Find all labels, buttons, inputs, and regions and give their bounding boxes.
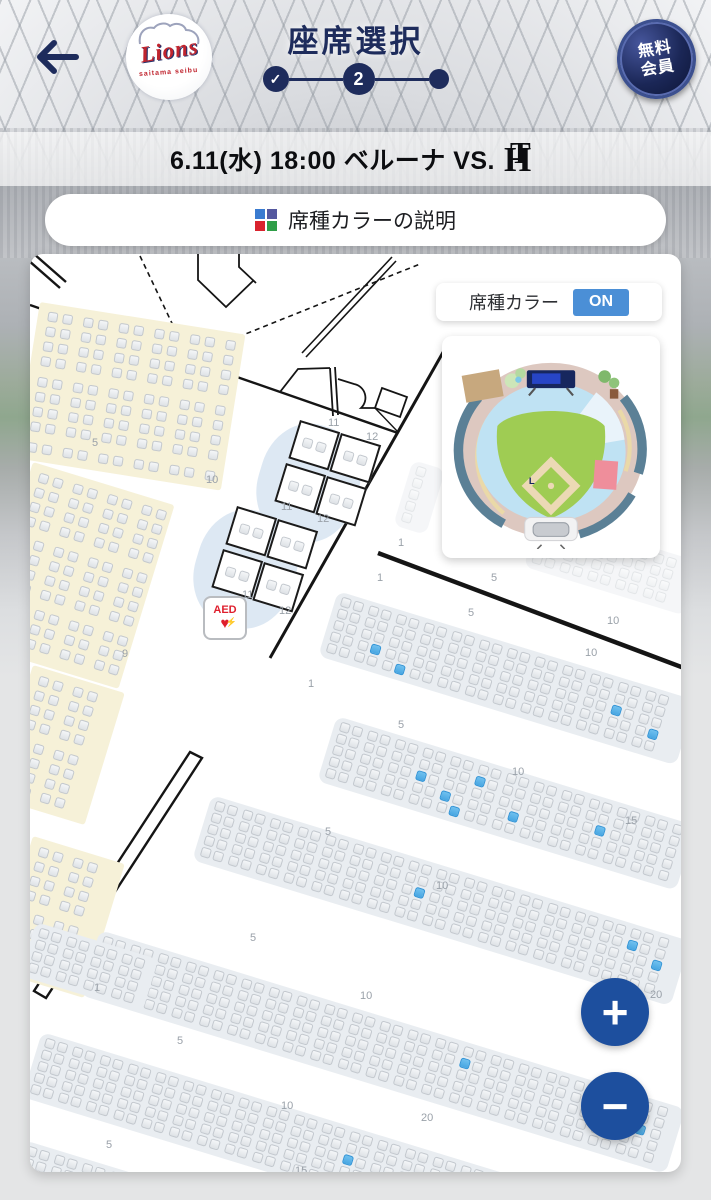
seat [545,1071,557,1083]
seat [30,704,41,716]
seat [166,346,177,357]
seat [563,1114,575,1126]
seat [44,575,56,587]
seat [365,1066,377,1078]
zoom-out-button[interactable]: − [581,1072,649,1140]
seat [349,612,361,624]
seat [82,571,94,583]
seat-row-label: 5 [177,1035,183,1047]
seat [440,665,452,677]
seat [62,314,73,325]
seat [418,758,430,770]
seat-color-toggle-button[interactable]: ON [573,289,629,316]
seat [296,995,308,1007]
seat [121,567,133,579]
seat [37,377,48,388]
seat [92,590,104,602]
seat [492,693,504,705]
seat [47,614,59,626]
seat-available[interactable] [439,790,451,802]
seat [293,837,305,849]
step-3-upcoming [429,69,449,89]
seat [224,566,236,578]
seat [73,531,85,543]
seat [588,798,600,810]
seat [116,635,128,647]
seat [626,697,638,709]
seat [58,782,70,794]
seat [412,1056,424,1068]
seat [491,818,503,830]
seat-row-label: 5 [325,826,331,838]
seat [460,888,472,900]
seat-selection-page: Lions saitama seibu 座席選択 ✓ 2 無料 会員 6.11(… [0,0,711,1200]
seat [532,948,544,960]
seat-map-canvas[interactable]: 5101112111211121911551010510155105110205… [30,254,681,1172]
seat [531,1117,543,1129]
seat [30,638,37,650]
seat [657,694,669,706]
seat [567,934,579,946]
seat [238,821,250,833]
seat [387,761,399,773]
seat [419,1033,431,1045]
seat [597,813,609,825]
seat [212,850,224,862]
seat [580,938,592,950]
seat-row-label: 5 [491,572,497,584]
seat-available[interactable] [647,728,659,740]
seat [360,628,372,640]
seat [587,570,599,582]
seat-row-label: 5 [468,607,474,619]
seat-available[interactable] [626,939,638,951]
seat [515,663,527,675]
seat-available[interactable] [507,811,519,823]
seat [566,1103,578,1115]
seat [527,679,539,691]
seat [101,561,113,573]
seat [532,706,544,718]
seat [200,1123,212,1135]
seat [301,1022,313,1034]
zoom-in-button[interactable]: + [581,978,649,1046]
seat [393,788,405,800]
seat [47,943,59,955]
seat [287,480,299,492]
seat [336,608,348,620]
seat [397,652,409,664]
seat [380,851,392,863]
seat [471,1061,483,1073]
seat [207,449,218,460]
seat [460,1165,472,1172]
seat [240,1135,252,1147]
seat [427,1060,439,1072]
seat [425,903,437,915]
seat [313,1038,325,1050]
seat-block-yellow [30,302,245,491]
seat [200,846,212,858]
seat [498,795,510,807]
seat-available[interactable] [394,663,406,675]
seat [382,1166,394,1172]
seat [169,464,180,475]
seat [258,1128,270,1140]
seat [453,911,465,923]
seat [643,740,655,752]
seat [95,334,106,345]
seat [515,905,527,917]
seat [73,1084,85,1096]
seat [607,946,619,958]
seat [285,1029,297,1041]
seat [603,727,615,739]
seat-available[interactable] [650,959,662,971]
seat [93,945,105,957]
color-grid-icon [255,209,277,231]
seat [533,781,545,793]
seat [512,917,524,929]
seat [622,708,634,720]
seat [451,794,463,806]
seat [64,1069,76,1081]
seat [34,939,46,951]
seat [385,648,397,660]
seat [349,1131,361,1143]
seat-row-label: 15 [295,1165,307,1172]
seat [573,793,585,805]
seat-row-label: 11 [281,501,292,513]
seat [42,341,53,352]
seat [520,1101,532,1113]
seat [87,557,99,569]
seat [268,867,280,879]
seat-row-label: 10 [281,1100,293,1112]
seat [388,636,400,648]
seat [576,949,588,961]
seat [446,767,458,779]
seat [77,890,89,902]
seat [210,1088,222,1100]
seat [174,995,186,1007]
seat [82,705,94,717]
seat [428,891,440,903]
seat [295,1152,307,1164]
seat [46,1076,58,1088]
seat [219,1104,231,1116]
seat-available[interactable] [369,643,381,655]
seat [572,1129,584,1141]
seat [507,1097,519,1109]
seat [105,1081,117,1093]
seat [181,972,193,984]
seat [129,1101,141,1113]
seat [476,814,488,826]
seat [354,881,366,893]
seat [551,1098,563,1110]
seat [530,1067,542,1079]
seat [290,1125,302,1137]
seat [220,369,231,380]
seat [603,562,615,574]
seat-available[interactable] [448,805,460,817]
seat [518,1063,530,1075]
seat [337,771,349,783]
seat [599,1138,611,1150]
seat [447,642,459,654]
seat [350,1062,362,1074]
seat [265,579,277,591]
seat [405,1079,417,1091]
seat [277,1002,289,1014]
seat [389,867,401,879]
seat [225,340,236,351]
seat [629,685,641,697]
seat [293,540,305,552]
seat [376,1139,388,1151]
seat [185,961,197,973]
seat [404,629,416,641]
seat [571,565,583,577]
seat [82,502,94,514]
seat [574,844,586,856]
seat [471,662,483,674]
seat [177,414,188,425]
seat-available[interactable] [610,704,622,716]
seat [413,1163,425,1172]
seat [583,926,595,938]
seat [30,624,41,636]
seat [373,874,385,886]
seat [559,1126,571,1138]
seat [634,724,646,736]
seat [58,579,70,591]
seat [63,512,75,524]
seat [333,1126,345,1138]
seat [210,812,222,824]
seat [377,1070,389,1082]
seat [236,1147,248,1159]
lions-team-logo: Lions saitama seibu [126,14,212,100]
seat [468,1073,480,1085]
seat [133,957,145,969]
seat [531,831,543,843]
seat [611,935,623,947]
seat-available[interactable] [415,770,427,782]
seat-available[interactable] [474,775,486,787]
seat [658,579,670,591]
seat [240,859,252,871]
seat [52,546,64,558]
seat [391,1024,403,1036]
seat [365,847,377,859]
seat [210,434,221,445]
seat [417,875,429,887]
seat-row-label: 10 [607,615,619,627]
svg-text:L: L [529,476,535,487]
seat [641,701,653,713]
seat [254,1032,266,1044]
seat [314,1145,326,1157]
seat-available[interactable] [594,825,606,837]
seat [30,962,40,974]
seat [361,1135,373,1147]
seat [108,388,119,399]
seat [42,1087,54,1099]
seat [436,1076,448,1088]
seat [411,477,423,489]
seat [157,953,169,965]
seat [328,493,340,505]
seat [642,932,654,944]
seat [174,429,185,440]
seat [246,1005,258,1017]
seat [184,1118,196,1130]
seat [519,827,531,839]
seat [99,1055,111,1067]
seat [158,396,169,407]
seat [479,802,491,814]
seat-color-legend-button[interactable]: 席種カラーの説明 [45,194,666,246]
seat [60,329,71,340]
seat [266,829,278,841]
seat [563,703,575,715]
seat [258,1021,270,1033]
seat [270,1025,282,1037]
seat [78,940,90,952]
seat [55,358,66,369]
seat [234,1108,246,1120]
seat [47,311,58,322]
seat [550,824,562,836]
seat [286,860,298,872]
seat [62,565,74,577]
seat [505,940,517,952]
seat [185,364,196,375]
seat [543,914,555,926]
seat-row-label: 10 [360,990,372,1002]
seat [569,805,581,817]
seat [243,1124,255,1136]
seat [618,567,630,579]
seat-row-label: 10 [436,880,448,892]
seat [428,1168,440,1172]
seat [487,897,499,909]
match-info-bar: 6.11(水) 18:00 ベルーナ VS. H T [0,132,711,186]
seat [78,347,89,358]
seat [376,620,388,632]
seat [408,617,420,629]
seat [226,804,238,816]
seat [197,381,208,392]
seat [58,959,70,971]
seat [123,1074,135,1086]
seat [496,682,508,694]
seat [77,1073,89,1085]
seat [646,1140,658,1152]
seat [155,509,167,521]
seat [156,411,167,422]
seat-available[interactable] [459,1057,471,1069]
seat [614,578,626,590]
seat [493,924,505,936]
seat-color-toggle-panel: 席種カラー ON [436,283,662,321]
seat [650,717,662,729]
seat [499,1070,511,1082]
seat [591,711,603,723]
seat-row-label: 20 [421,1112,433,1124]
seat [523,690,535,702]
seat [559,906,571,918]
seat [613,693,625,705]
seat [542,796,554,808]
seat [531,898,543,910]
seat [116,1097,128,1109]
seat [401,883,413,895]
seat [162,375,173,386]
seat [30,1083,42,1095]
seat [77,719,89,731]
seat [136,518,148,530]
seat [33,609,45,621]
seat [451,630,463,642]
seat [588,965,600,977]
seat [480,920,492,932]
seat [202,351,213,362]
seat [261,1009,273,1021]
seat-available[interactable] [342,1154,354,1166]
seat [189,431,200,442]
seat [310,1157,322,1169]
seat [43,709,55,721]
seat [614,856,626,868]
seat [401,1159,413,1171]
seat [468,673,480,685]
seat [464,1084,476,1096]
seat [108,663,120,675]
seat [194,976,206,988]
seat [573,961,585,973]
seat [179,399,190,410]
seat [108,1070,120,1082]
seat [315,441,327,453]
aed-marker: AED ♥⚡ [203,596,247,640]
seat [167,1075,179,1087]
seat [536,694,548,706]
seat [462,927,474,939]
seat [357,1039,369,1051]
seat [463,810,475,822]
back-button[interactable] [34,36,80,78]
seat [463,634,475,646]
seat [483,1077,495,1089]
seat [328,756,340,768]
match-info-text: 6.11(水) 18:00 ベルーナ VS. [170,141,495,177]
seat [254,813,266,825]
seat [480,677,492,689]
seat [49,1064,61,1076]
seat [188,1107,200,1119]
seat [557,801,569,813]
seat [212,420,223,431]
seat [126,980,138,992]
seat [59,649,71,661]
seat [545,952,557,964]
seat [301,437,313,449]
seat [147,373,158,384]
seat-available[interactable] [413,887,425,899]
